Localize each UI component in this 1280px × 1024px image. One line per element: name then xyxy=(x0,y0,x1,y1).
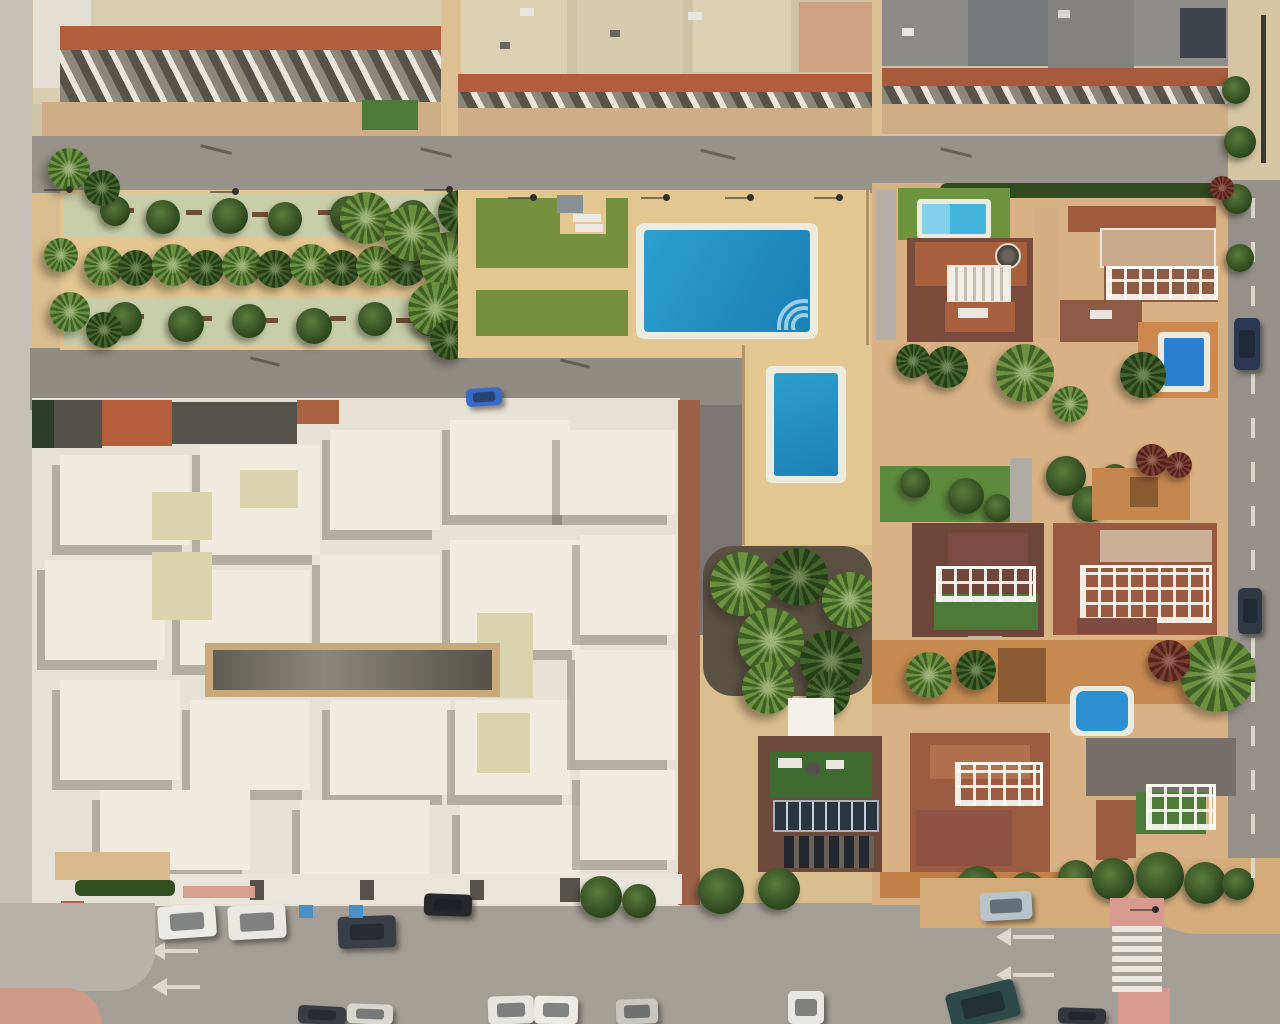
parked-car-black xyxy=(424,893,473,917)
doorway xyxy=(360,880,374,900)
balcony-band-mid xyxy=(458,92,878,108)
sidewalk-bottom-left xyxy=(0,903,155,991)
villaG-pergola xyxy=(1146,784,1216,830)
blue-car-mid-road xyxy=(465,387,502,407)
corner-hedge xyxy=(1092,858,1134,900)
lane-dash xyxy=(1251,506,1255,526)
roof-seg-gray1 xyxy=(54,400,102,448)
sun-lounger xyxy=(575,224,603,232)
parked-car-white xyxy=(157,903,217,940)
grove-palm xyxy=(822,572,878,628)
row2-red-foliage xyxy=(1166,452,1192,478)
arrow-tail xyxy=(166,985,200,989)
complex-roof-block xyxy=(450,420,570,515)
bottom-hedge xyxy=(622,884,656,918)
pool-pavilion xyxy=(557,195,583,213)
grove-palm xyxy=(742,662,794,714)
garden-tree xyxy=(146,200,180,234)
road-arrow xyxy=(150,942,200,960)
complex-roof-block xyxy=(320,555,440,655)
doorway xyxy=(470,880,484,900)
complex-skylight-panel xyxy=(240,470,298,508)
balcony-band-left xyxy=(60,50,455,102)
road-arrow xyxy=(152,978,202,996)
bottom-hedge xyxy=(580,876,622,918)
row3-palm xyxy=(956,650,996,690)
garden-palm xyxy=(86,312,122,348)
yard-palm xyxy=(1052,386,1088,422)
lamp-shadow xyxy=(210,191,234,193)
bottom-hedge xyxy=(758,868,800,910)
garden-tree xyxy=(212,198,248,234)
parked-car-bottom xyxy=(788,991,824,1024)
roof-terracotta-band-left xyxy=(60,26,455,50)
crosswalk-stripe xyxy=(1112,986,1162,992)
villaB-pergola xyxy=(1106,266,1218,300)
parked-car-white xyxy=(227,904,287,941)
garden-palm xyxy=(188,250,224,286)
bougainvillea xyxy=(1210,176,1234,200)
garden-palm xyxy=(44,238,78,272)
villaB-terrace-top xyxy=(1100,228,1216,268)
lane-dash xyxy=(1251,286,1255,306)
complex-roof-block xyxy=(190,700,310,790)
villaB-terrace-low xyxy=(1060,300,1142,342)
complex-roof-block xyxy=(460,805,580,875)
roof-gray-2 xyxy=(968,0,1048,66)
complex-roof-block xyxy=(330,700,450,795)
bench xyxy=(330,316,346,321)
parked-car-right-road xyxy=(1234,318,1260,370)
lamp-shadow xyxy=(44,189,68,191)
car-window xyxy=(990,898,1022,914)
villaB-pool-water xyxy=(1164,338,1204,386)
complex-roof-block xyxy=(330,430,440,530)
lane-dash xyxy=(1251,418,1255,438)
roof-gray-1 xyxy=(882,0,968,66)
lane-dash xyxy=(1251,858,1255,878)
villaG-terrace xyxy=(1096,800,1136,860)
rooftop-vent xyxy=(500,42,510,49)
street-lamp xyxy=(446,186,453,193)
rooftop-unit xyxy=(688,12,702,20)
row2-tree xyxy=(948,478,984,514)
villaF-terrace xyxy=(916,810,1012,866)
car-window xyxy=(239,912,275,931)
row3-pergola-wood xyxy=(998,648,1046,702)
complex-skylight-panel xyxy=(477,713,530,773)
car-window xyxy=(356,1008,384,1019)
car-window xyxy=(624,1005,650,1019)
lamp-shadow xyxy=(641,197,665,199)
parked-car-silver xyxy=(979,891,1032,922)
small-pool-fence xyxy=(742,345,745,545)
roof-seg-darkgreen xyxy=(32,400,54,448)
grove-palm xyxy=(770,548,828,606)
roof-terracotta-band-mid xyxy=(458,74,878,92)
complex-skylight-panel xyxy=(152,552,212,620)
street-lamp xyxy=(66,186,73,193)
parked-car-bottom xyxy=(488,995,535,1024)
car-window xyxy=(307,1010,336,1021)
roadside-hedge xyxy=(1224,126,1256,158)
arrow-head xyxy=(996,928,1011,946)
parked-car-bottom xyxy=(298,1005,347,1024)
lane-dash xyxy=(1251,550,1255,570)
street-lamp xyxy=(232,188,239,195)
car-window xyxy=(1243,599,1257,623)
parking-sign xyxy=(299,905,313,918)
roadside-hedge xyxy=(1226,244,1254,272)
street-lamp xyxy=(1152,906,1159,913)
complex-roof-block xyxy=(580,770,675,860)
roof-block-1 xyxy=(461,0,567,74)
complex-walkway xyxy=(678,400,700,905)
garden-tree xyxy=(268,202,302,236)
villaA-pergola-slats xyxy=(947,265,1011,303)
pool-fence xyxy=(866,190,869,358)
garden-tree xyxy=(168,306,204,342)
street-lamp xyxy=(747,194,754,201)
entrance-terrace xyxy=(55,852,170,880)
row3-palm xyxy=(906,652,952,698)
garden-palm xyxy=(324,250,360,286)
garden-palm xyxy=(84,170,120,206)
parked-car-bottom xyxy=(1058,1007,1107,1024)
parked-car-right-road xyxy=(1238,588,1262,634)
villaD-terrace-low xyxy=(1077,618,1157,634)
complex-roof-block xyxy=(60,680,180,780)
row3-palm xyxy=(1180,636,1256,712)
crosswalk-stripe xyxy=(1112,926,1162,932)
skylight-dark xyxy=(213,650,492,690)
parked-car-bottom xyxy=(347,1003,394,1024)
arrow-tail xyxy=(164,949,198,953)
roof-dark-panel xyxy=(1180,8,1226,58)
parked-car-bottom xyxy=(616,998,659,1024)
pink-patch-top xyxy=(1110,898,1164,928)
arrow-tail xyxy=(1013,973,1054,977)
lamp-shadow xyxy=(1130,909,1154,911)
road-arrow xyxy=(996,928,1056,946)
rooftop-unit xyxy=(1058,10,1070,18)
roof-block-red xyxy=(799,2,875,72)
car-window xyxy=(1239,330,1255,357)
complex-roof-block xyxy=(45,560,165,660)
row3-red-foliage xyxy=(1148,640,1190,682)
crosswalk-stripe xyxy=(1112,976,1162,982)
doorway xyxy=(560,878,580,902)
hedge-strip xyxy=(75,880,175,896)
lamp-shadow xyxy=(814,197,838,199)
lane-dash xyxy=(1251,726,1255,746)
rooftop-vent xyxy=(610,30,620,37)
pool-steps xyxy=(762,288,808,330)
villaB-palm xyxy=(1120,352,1166,398)
villa-driveway xyxy=(876,190,896,340)
arrow-tail xyxy=(1013,935,1054,939)
lane-dash xyxy=(1251,638,1255,658)
row2-path xyxy=(1010,458,1032,522)
roof-seg-orange xyxy=(102,400,172,446)
villaD-pergola xyxy=(1080,565,1212,623)
corner-hedge xyxy=(1136,852,1184,900)
complex-roof-block xyxy=(300,800,430,875)
corner-hedge xyxy=(1222,868,1254,900)
roof-green-terrace xyxy=(362,100,418,130)
lane-dash xyxy=(1251,770,1255,790)
left-street xyxy=(0,0,32,905)
lane-dash xyxy=(1251,374,1255,394)
car-window xyxy=(1067,1011,1096,1020)
lamp-shadow xyxy=(424,189,448,191)
alley-gap-2 xyxy=(872,0,882,138)
roof-seg-orange2 xyxy=(297,400,339,424)
villaE-canopy xyxy=(788,698,834,736)
lamp-shadow xyxy=(725,197,749,199)
car-window xyxy=(497,1002,525,1018)
poolG-water xyxy=(1076,691,1128,731)
parked-car-dark xyxy=(337,915,396,949)
car-window xyxy=(795,999,817,1016)
roof-block-3 xyxy=(693,0,791,72)
garden-palm xyxy=(118,250,154,286)
complex-roof-block xyxy=(575,650,675,760)
parking-sign xyxy=(349,905,363,918)
pink-patch-bottom xyxy=(1118,988,1170,1024)
roof-block-2 xyxy=(577,0,683,76)
garden-tree xyxy=(296,308,332,344)
lamp-shadow xyxy=(508,197,532,199)
car-window xyxy=(473,392,495,403)
row2-red-foliage xyxy=(1136,444,1168,476)
villaF-pergola xyxy=(955,762,1043,806)
row2-tree xyxy=(900,468,930,498)
villaE-panels xyxy=(784,836,874,868)
villaC-roof xyxy=(948,533,1028,565)
yard-palm xyxy=(996,344,1054,402)
aerial-drone-photo xyxy=(0,0,1280,1024)
garden-palm xyxy=(50,292,90,332)
rooftop-unit xyxy=(520,8,534,16)
bottom-hedge xyxy=(698,868,744,914)
walk-salmon xyxy=(183,886,255,898)
garden-tree xyxy=(358,302,392,336)
car-window xyxy=(960,990,1006,1019)
villaA-pool-cover xyxy=(922,204,950,234)
roof-seg-gray2 xyxy=(172,402,297,444)
street-lamp xyxy=(530,194,537,201)
rooftop-unit xyxy=(902,28,914,36)
grove-palm xyxy=(710,552,774,616)
villaE-lounger xyxy=(826,760,844,769)
lane-dash xyxy=(1251,682,1255,702)
crosswalk-stripe xyxy=(1112,936,1162,942)
villaE-solar-array xyxy=(773,800,879,832)
flag-pole xyxy=(1261,15,1266,163)
arrow-head xyxy=(152,978,167,996)
villaA-lounger xyxy=(958,308,988,318)
small-pool-water xyxy=(774,373,838,476)
bench xyxy=(252,212,268,217)
villaB-lounger xyxy=(1090,310,1112,319)
sun-lounger xyxy=(573,214,601,222)
lane-dash xyxy=(1251,462,1255,482)
villaD-roof-beige xyxy=(1100,530,1212,562)
crosswalk xyxy=(1112,926,1162,992)
crosswalk-stripe xyxy=(1112,946,1162,952)
garden-tree xyxy=(232,304,266,338)
street-lamp xyxy=(836,194,843,201)
complex-skylight-panel xyxy=(152,492,212,540)
complex-roof-block xyxy=(560,430,675,515)
street-lamp xyxy=(663,194,670,201)
villaE-table xyxy=(806,762,820,776)
lane-dash xyxy=(1251,814,1255,834)
crosswalk-stripe xyxy=(1112,966,1162,972)
corner-hedge xyxy=(1184,862,1226,904)
row2-tree xyxy=(984,494,1012,522)
villaE-lounger xyxy=(778,758,802,768)
terrace-band-mid xyxy=(458,108,878,136)
roadside-hedge xyxy=(1222,76,1250,104)
car-window xyxy=(433,899,462,911)
car-window xyxy=(169,912,205,932)
roof-terracotta-band-right xyxy=(882,68,1230,86)
yard-palm xyxy=(926,346,968,388)
bench xyxy=(186,210,202,215)
lane-line-right xyxy=(1251,198,1255,898)
row2-wood-deck xyxy=(1130,477,1158,507)
crosswalk-stripe xyxy=(1112,956,1162,962)
villa-gap-drive xyxy=(1035,208,1057,338)
balcony-band-right xyxy=(882,86,1230,104)
car-window xyxy=(349,923,384,941)
garden-palm xyxy=(256,250,294,288)
car-window xyxy=(543,1002,570,1017)
complex-roof-block xyxy=(580,535,675,635)
yard-palm xyxy=(896,344,930,378)
villaC-pergola xyxy=(936,566,1036,602)
parked-car-bottom xyxy=(534,996,578,1024)
terrace-band-right xyxy=(882,104,1230,134)
pool-lawn-lower xyxy=(476,290,628,336)
